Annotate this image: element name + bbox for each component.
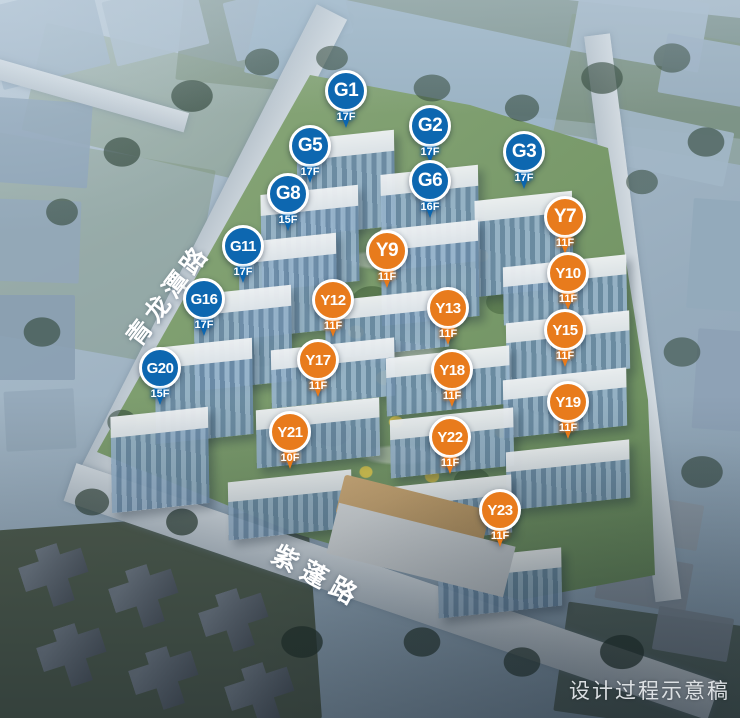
pin-floor-label: 10F	[267, 452, 313, 464]
pin-bubble: Y9	[366, 230, 408, 272]
pin-bubble: Y23	[479, 489, 521, 531]
building-pin-y7[interactable]: Y7 11F	[542, 196, 588, 254]
building-pin-y23[interactable]: Y23 11F	[477, 489, 523, 547]
pin-bubble: G2	[409, 105, 451, 147]
building-pin-g1[interactable]: G1 17F	[323, 70, 369, 128]
pin-bubble: Y19	[547, 381, 589, 423]
pin-bubble: Y7	[544, 196, 586, 238]
pin-bubble: G5	[289, 125, 331, 167]
pin-floor-label: 17F	[181, 319, 227, 331]
building-pin-y12[interactable]: Y12 11F	[310, 279, 356, 337]
pin-label: Y9	[376, 240, 398, 262]
pin-label: G11	[230, 238, 256, 255]
building-pin-y19[interactable]: Y19 11F	[545, 381, 591, 439]
pin-bubble: Y15	[544, 309, 586, 351]
building-pin-g2[interactable]: G2 17F	[407, 105, 453, 163]
building-pin-y17[interactable]: Y17 11F	[295, 339, 341, 397]
pin-bubble: G20	[139, 347, 181, 389]
pin-label: G1	[334, 80, 358, 102]
pin-floor-label: 17F	[407, 146, 453, 158]
pin-bubble: G1	[325, 70, 367, 112]
building-pin-y22[interactable]: Y22 11F	[427, 416, 473, 474]
pin-label: Y15	[552, 322, 577, 339]
watermark-text: 设计过程示意稿	[569, 675, 730, 705]
pin-label: Y13	[435, 300, 460, 317]
pin-label: Y19	[555, 394, 580, 411]
pin-bubble: Y17	[297, 339, 339, 381]
pin-label: Y18	[439, 362, 464, 379]
pin-label: G16	[191, 291, 218, 308]
pin-label: G2	[418, 115, 442, 137]
pin-floor-label: 11F	[542, 237, 588, 249]
building-pin-y21[interactable]: Y21 10F	[267, 411, 313, 469]
pin-floor-label: 11F	[425, 328, 471, 340]
pin-bubble: G8	[267, 173, 309, 215]
pin-bubble: G11	[222, 225, 264, 267]
building-pin-y9[interactable]: Y9 11F	[364, 230, 410, 288]
pin-floor-label: 11F	[310, 320, 356, 332]
site-plan-aerial-map: 青龙潭路 紫蓬路 设计过程示意稿 G1 17F G2 17F G5 17F G3…	[0, 0, 740, 718]
pin-floor-label: 16F	[407, 201, 453, 213]
pin-label: G8	[276, 183, 300, 205]
pin-floor-label: 11F	[429, 390, 475, 402]
pin-label: Y7	[554, 206, 576, 228]
pin-bubble: G16	[183, 278, 225, 320]
pin-bubble: Y21	[269, 411, 311, 453]
pin-bubble: Y12	[312, 279, 354, 321]
building-pin-g8[interactable]: G8 15F	[265, 173, 311, 231]
pin-label: Y10	[555, 265, 580, 282]
building-pin-g20[interactable]: G20 15F	[137, 347, 183, 405]
pin-bubble: Y18	[431, 349, 473, 391]
pin-floor-label: 15F	[137, 388, 183, 400]
pin-floor-label: 17F	[501, 172, 547, 184]
pin-floor-label: 11F	[542, 350, 588, 362]
pin-label: Y22	[437, 429, 462, 446]
pin-label: Y23	[487, 502, 512, 519]
pin-label: Y12	[320, 292, 345, 309]
pin-label: Y17	[305, 352, 330, 369]
pin-bubble: Y10	[547, 252, 589, 294]
pin-label: G5	[298, 135, 322, 157]
pin-bubble: Y13	[427, 287, 469, 329]
pin-floor-label: 11F	[427, 457, 473, 469]
building-pin-g6[interactable]: G6 16F	[407, 160, 453, 218]
pin-floor-label: 11F	[364, 271, 410, 283]
pin-floor-label: 11F	[545, 293, 591, 305]
pin-floor-label: 17F	[220, 266, 266, 278]
pin-bubble: Y22	[429, 416, 471, 458]
pin-floor-label: 15F	[265, 214, 311, 226]
building-pin-y10[interactable]: Y10 11F	[545, 252, 591, 310]
building-pin-y15[interactable]: Y15 11F	[542, 309, 588, 367]
pin-label: G20	[147, 360, 174, 377]
pin-floor-label: 11F	[477, 530, 523, 542]
pin-floor-label: 11F	[545, 422, 591, 434]
building-pin-g11[interactable]: G11 17F	[220, 225, 266, 283]
site-building-g20	[110, 407, 209, 514]
pin-floor-label: 11F	[295, 380, 341, 392]
pin-label: Y21	[277, 424, 302, 441]
pin-floor-label: 17F	[323, 111, 369, 123]
pin-bubble: G3	[503, 131, 545, 173]
building-pin-g16[interactable]: G16 17F	[181, 278, 227, 336]
pin-bubble: G6	[409, 160, 451, 202]
pin-label: G3	[512, 141, 536, 163]
pin-label: G6	[418, 170, 442, 192]
building-pin-y18[interactable]: Y18 11F	[429, 349, 475, 407]
building-pin-y13[interactable]: Y13 11F	[425, 287, 471, 345]
building-pin-g3[interactable]: G3 17F	[501, 131, 547, 189]
